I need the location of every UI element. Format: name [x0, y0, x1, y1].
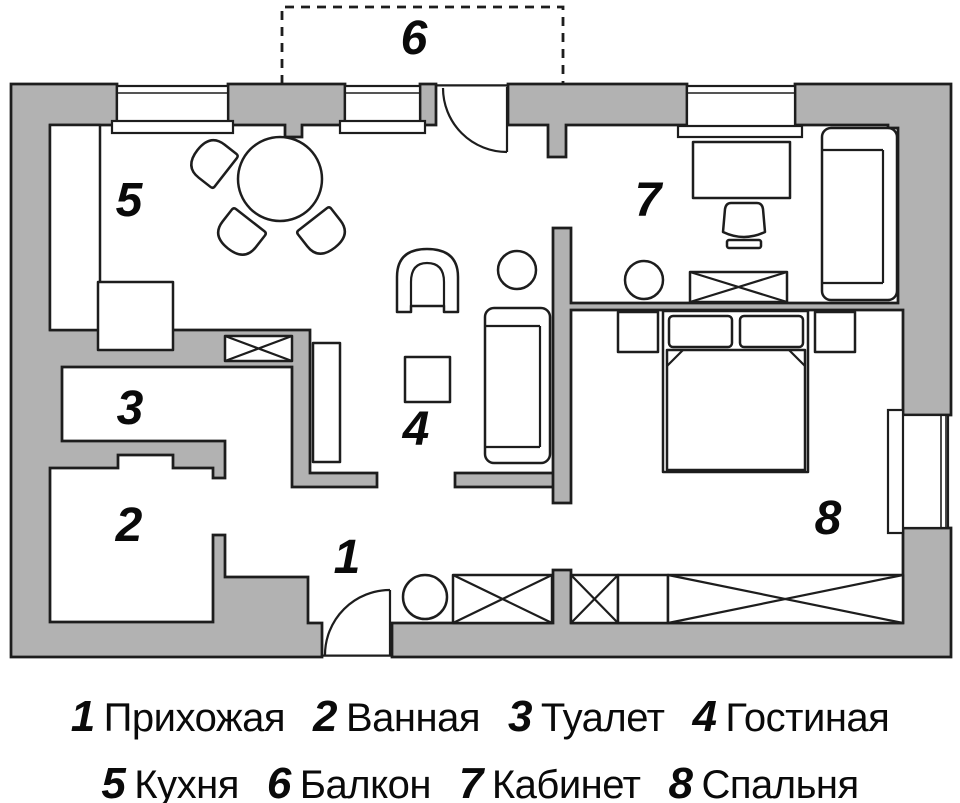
legend-number: 3	[508, 692, 532, 741]
kitchen-window-1	[112, 86, 233, 133]
room-label-bedroom: 8	[815, 492, 842, 545]
office-window	[678, 86, 802, 137]
legend-number: 7	[459, 759, 483, 803]
room-label-toilet: 3	[117, 382, 144, 435]
wall-top-mid	[508, 84, 687, 157]
vent-shaft	[225, 336, 292, 361]
balcony-door	[443, 87, 507, 152]
living-armchair	[397, 249, 458, 312]
bed-pillow	[740, 316, 803, 347]
room-label-balcony: 6	[401, 12, 428, 65]
kitchen-window-2	[340, 86, 425, 133]
legend-name: Ванная	[346, 696, 480, 740]
legend-row-1: 1Прихожая 2Ванная 3Туалет 4Гостиная	[0, 688, 960, 755]
legend-entry: 5Кухня	[101, 755, 239, 803]
office-desk	[693, 142, 790, 198]
legend-name: Гостиная	[725, 696, 889, 740]
window-sill	[678, 126, 802, 137]
window-sill	[112, 121, 233, 133]
living-coffee-table	[405, 357, 450, 402]
door-swing-arc	[325, 590, 390, 655]
entry-door	[325, 590, 390, 655]
walls	[11, 84, 951, 657]
legend-number: 5	[101, 759, 125, 803]
legend-entry: 7Кабинет	[459, 755, 641, 803]
window-recess	[687, 86, 795, 127]
legend-number: 4	[692, 692, 716, 741]
living-side-table	[498, 251, 536, 289]
bedroom-wardrobe-small	[571, 575, 618, 623]
room-label-bathroom: 2	[115, 499, 143, 552]
living-sofa	[485, 308, 550, 463]
hallway-stool	[403, 575, 447, 619]
kitchen-table	[238, 137, 322, 221]
legend-row-2: 5Кухня 6Балкон 7Кабинет 8Спальня	[0, 755, 960, 803]
legend-entry: 2Ванная	[313, 688, 480, 755]
window-sill	[888, 410, 903, 533]
legend-number: 6	[267, 759, 291, 803]
bedroom-wardrobe-large	[668, 575, 903, 623]
door-swing-arc	[443, 88, 507, 152]
legend-entry: 3Туалет	[508, 688, 665, 755]
legend-entry: 1Прихожая	[71, 688, 285, 755]
hall-open-door-leaf	[313, 343, 340, 462]
legend-number: 2	[313, 692, 337, 741]
floor-plan-page: 6 5 7 3 2 4 1 8 1Прихожая 2Ванная 3Туале…	[0, 0, 960, 803]
bedroom-nightstand	[618, 312, 658, 352]
legend-entry: 4Гостиная	[692, 688, 889, 755]
room-label-living: 4	[402, 403, 430, 456]
office-sofa	[822, 128, 897, 300]
office-chair	[723, 203, 765, 248]
legend-entry: 8Спальня	[668, 755, 858, 803]
kitchen-counter	[50, 125, 100, 330]
office-dresser	[690, 272, 787, 302]
window-recess	[345, 86, 420, 125]
legend-name: Спальня	[701, 763, 858, 803]
kitchen-chair	[185, 134, 239, 189]
legend-name: Кухня	[134, 763, 239, 803]
kitchen-fridge	[98, 282, 173, 350]
wall-top-pier-2	[420, 84, 436, 125]
bedroom-cabinet	[618, 575, 668, 623]
legend-name: Туалет	[541, 696, 665, 740]
legend-name: Кабинет	[492, 763, 641, 803]
legend-name: Прихожая	[104, 696, 285, 740]
window-recess	[117, 86, 228, 125]
bedroom-bed	[663, 311, 808, 472]
office-stool	[625, 261, 663, 299]
wall-top-pier-1	[228, 84, 345, 137]
room-label-hallway: 1	[334, 531, 361, 584]
legend-name: Балкон	[300, 763, 431, 803]
legend-number: 1	[71, 692, 95, 741]
bed-pillow	[669, 316, 732, 347]
legend-number: 8	[668, 759, 692, 803]
bedroom-window	[888, 410, 948, 533]
room-label-kitchen: 5	[116, 174, 144, 227]
floor-plan: 6 5 7 3 2 4 1 8	[0, 0, 960, 688]
wall-hall-living-return	[455, 473, 560, 487]
window-sill	[340, 121, 425, 133]
bedroom-nightstand	[815, 312, 855, 352]
legend-entry: 6Балкон	[267, 755, 431, 803]
room-label-office: 7	[635, 174, 664, 227]
hallway-wardrobe	[453, 575, 552, 623]
legend: 1Прихожая 2Ванная 3Туалет 4Гостиная 5Кух…	[0, 688, 960, 803]
